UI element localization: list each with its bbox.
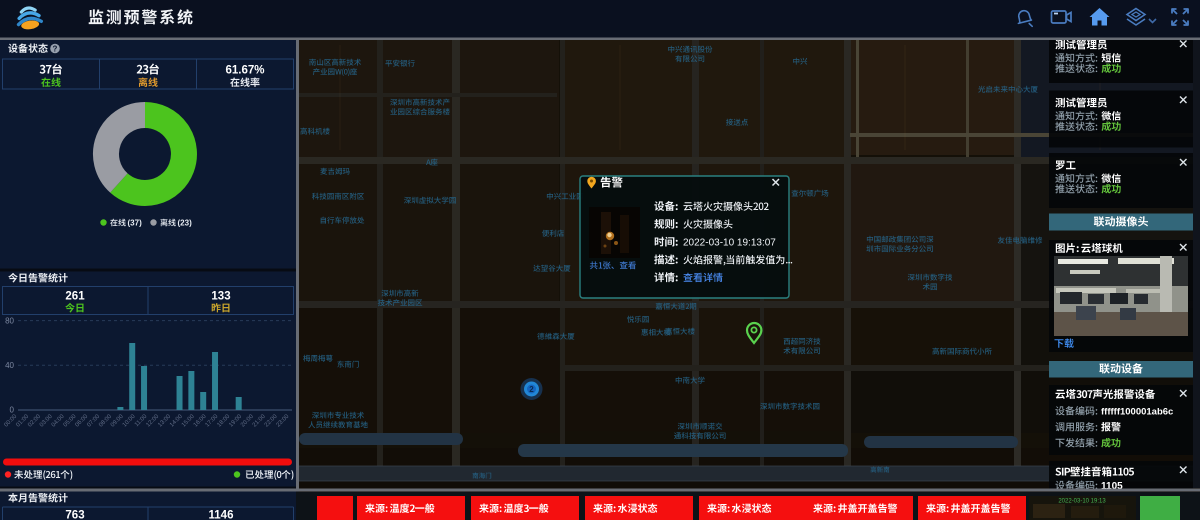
svg-text:40: 40 <box>5 361 14 370</box>
svg-text:(37): (37) <box>128 219 143 228</box>
svg-text:133: 133 <box>211 291 230 303</box>
svg-text:2: 2 <box>529 385 534 394</box>
svg-text:261: 261 <box>65 291 85 303</box>
svg-text:80: 80 <box>5 317 14 326</box>
svg-text:61.67%: 61.67% <box>225 65 264 77</box>
svg-text:763: 763 <box>65 510 84 520</box>
svg-text:2022-03-10 19:13: 2022-03-10 19:13 <box>1058 499 1106 505</box>
svg-text:2022-03-10 19:13:07: 2022-03-10 19:13:07 <box>683 238 776 249</box>
svg-text:?: ? <box>53 45 58 54</box>
svg-text:1146: 1146 <box>209 510 234 520</box>
svg-text:(23): (23) <box>178 219 193 228</box>
svg-text:ffffff100001ab6c: ffffff100001ab6c <box>1101 407 1173 418</box>
svg-text:0: 0 <box>10 406 15 415</box>
